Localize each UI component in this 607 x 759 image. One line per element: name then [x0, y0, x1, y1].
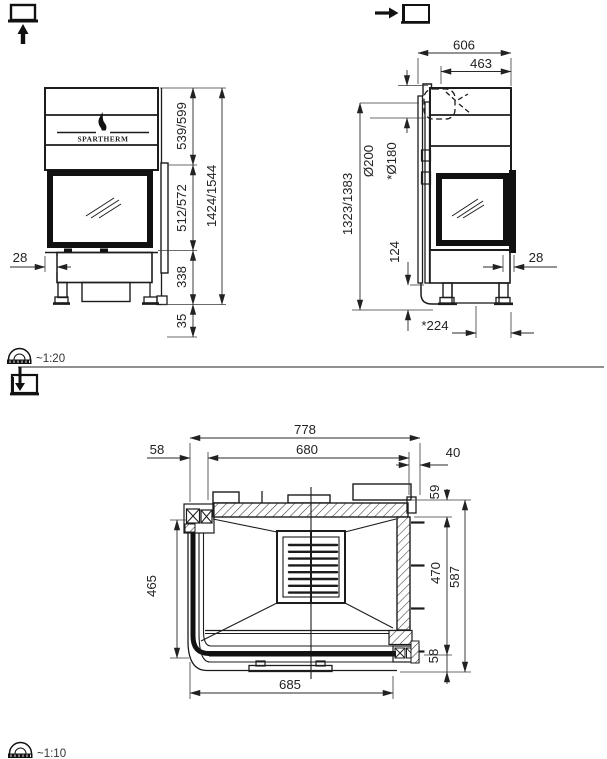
- spartherm-logo: SPARTHERM: [57, 112, 149, 144]
- dim-front-feet: 35: [174, 314, 189, 329]
- brand-logo-text: SPARTHERM: [78, 135, 129, 144]
- dim-plan-total-depth: 587: [447, 566, 462, 588]
- dim-side-flue-center: 463: [470, 56, 492, 71]
- side-view-icon: [375, 4, 430, 23]
- dim-plan-total-width: 778: [294, 422, 316, 437]
- dim-side-depth: 606: [453, 38, 475, 53]
- front-view-icon: [8, 5, 38, 44]
- side-body: [418, 84, 516, 304]
- left-glass-side: [188, 533, 211, 671]
- dim-plan-glass-side: 465: [144, 575, 159, 597]
- dim-plan-back: 59: [427, 485, 442, 500]
- side-glass-door: [439, 176, 506, 243]
- front-body: SPARTHERM: [45, 88, 168, 305]
- dim-front-total-height: 1424/1544: [204, 165, 219, 227]
- dim-side-plinth: 124: [387, 241, 402, 263]
- dim-side-front-lip: 28: [529, 250, 544, 265]
- technical-drawing-page: SPARTHERM: [0, 0, 607, 759]
- dim-side-flue-inner: *Ø180: [384, 142, 399, 179]
- front-view: SPARTHERM: [8, 5, 226, 337]
- scale-lower: ~1:10: [8, 743, 66, 759]
- front-glass-door: [50, 173, 150, 245]
- front-frame-lip: [509, 170, 516, 253]
- dim-side-flue-outer: Ø200: [361, 145, 376, 177]
- dim-front-base-section: 338: [174, 266, 189, 288]
- scale-lower-label: ~1:10: [37, 748, 66, 759]
- top-view-icon: [10, 367, 39, 394]
- protractor-icon-lower: [8, 743, 33, 759]
- corner-hinge-detail: [184, 504, 214, 533]
- protractor-icon: [7, 349, 32, 365]
- dim-plan-left: 58: [150, 442, 165, 457]
- scale-upper: ~1:20: [7, 349, 65, 366]
- dim-side-flue-height: 1323/1383: [340, 173, 355, 235]
- drawing-canvas: SPARTHERM: [0, 0, 607, 759]
- front-glass-edge: [205, 631, 397, 671]
- plan-body: [184, 484, 425, 679]
- dim-plan-front-width: 685: [279, 677, 301, 692]
- side-view: 606 463 Ø200 *Ø180 1323/1383 124 28 *224: [340, 4, 557, 338]
- dim-plan-right: 40: [446, 445, 461, 460]
- dim-plan-side: 470: [428, 562, 443, 584]
- plan-view: 778 680 58 40 59 470 587 58 465 685: [144, 422, 471, 699]
- dim-front-left-inset: 28: [13, 250, 28, 265]
- dim-side-base-depth: *224: [421, 318, 448, 333]
- dim-front-top-section: 539/599: [174, 102, 189, 150]
- dim-front-glass-section: 512/572: [174, 184, 189, 232]
- dim-plan-inner-width: 680: [296, 442, 318, 457]
- latch-detail: [389, 631, 419, 664]
- scale-upper-label: ~1:20: [36, 353, 65, 365]
- dim-plan-front-edge: 58: [426, 649, 441, 664]
